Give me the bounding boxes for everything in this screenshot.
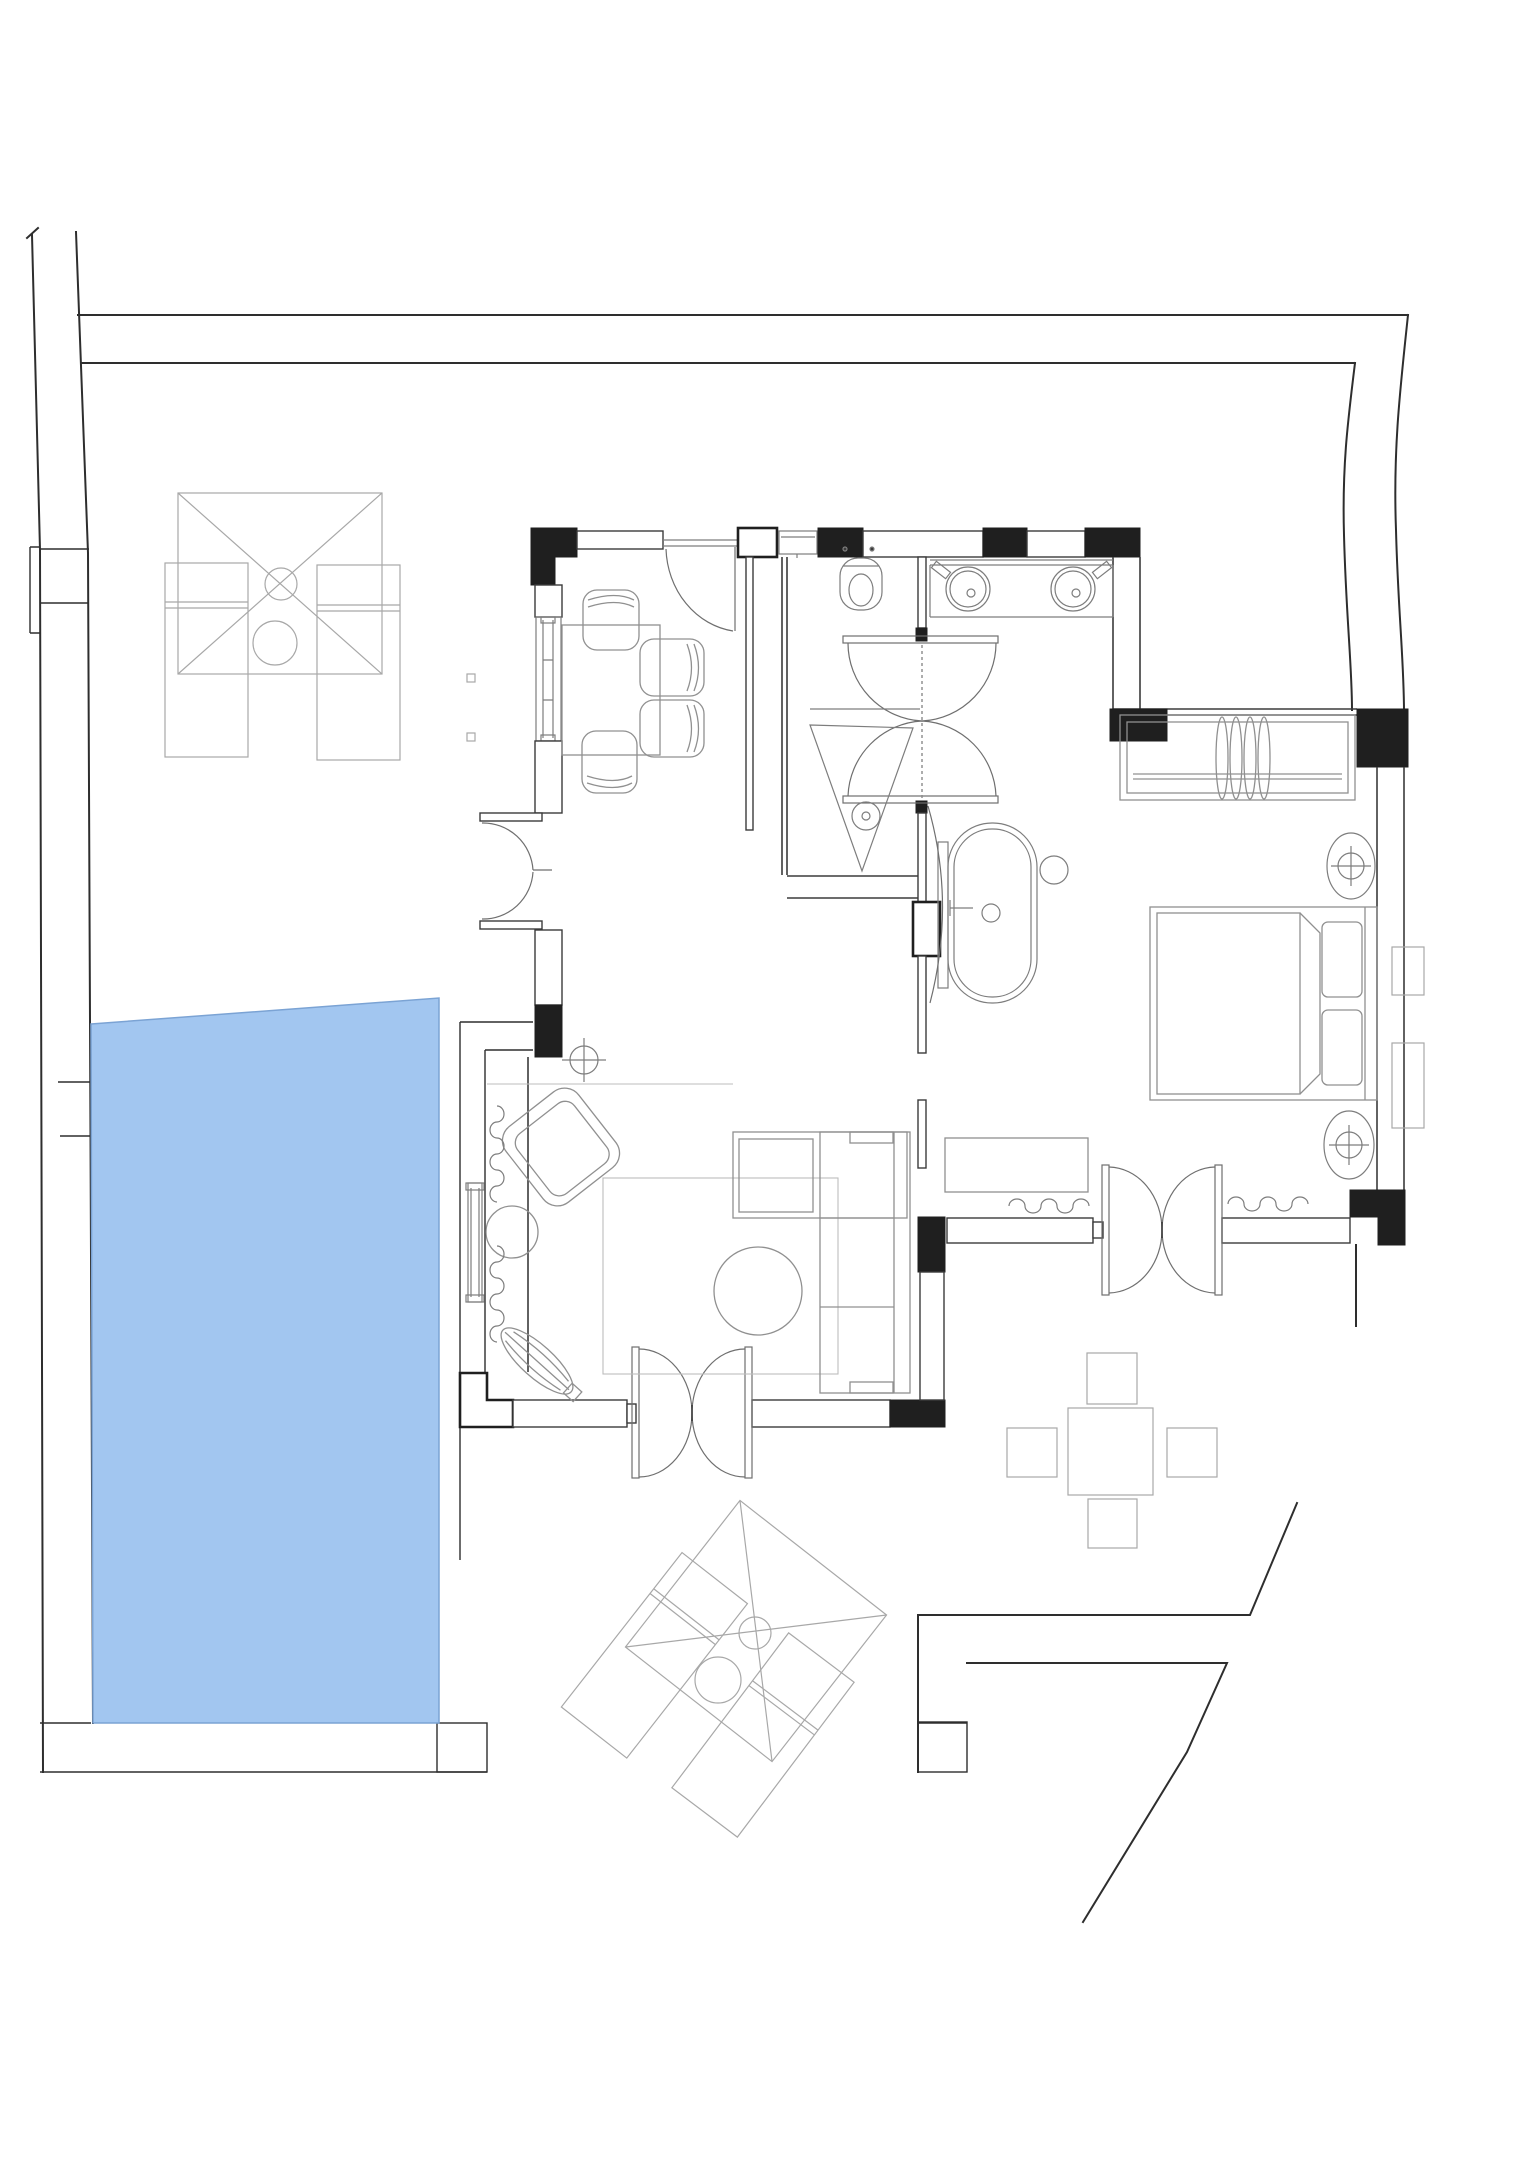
sink-left xyxy=(946,567,990,611)
floor-plan-drawing xyxy=(0,0,1526,2160)
curtain-squiggle-west-1 xyxy=(490,1106,504,1202)
ceiling-light-bed-north xyxy=(1327,833,1375,899)
bedroom-door-arc-left xyxy=(1109,1167,1162,1293)
boundary-left-outer xyxy=(32,235,43,1772)
boundary-left-inner xyxy=(76,232,93,1723)
outdoor-chair-left xyxy=(1007,1428,1057,1477)
wall-spine-lower-a xyxy=(918,956,926,1053)
dining-chair-1 xyxy=(583,590,639,650)
wall-top-kitchen xyxy=(577,531,663,549)
pillar-nw-living xyxy=(535,1005,562,1057)
wc-fixtures xyxy=(810,547,920,871)
bedroom-door-leaf-right xyxy=(1215,1165,1222,1295)
doors xyxy=(480,547,1222,1478)
entry-threshold xyxy=(663,540,738,546)
pillar-wc xyxy=(818,528,863,557)
outdoor-set-south xyxy=(561,1500,886,1837)
terrace-marker-square-1 xyxy=(467,674,475,682)
swimming-pool xyxy=(91,998,439,1723)
curtain-squiggle-hall xyxy=(1009,1199,1089,1213)
wall-bath-east xyxy=(1113,557,1140,712)
dining-chair-3 xyxy=(640,639,704,696)
dining-chair-4 xyxy=(640,700,704,757)
terrace-edge-outer xyxy=(918,1503,1297,1772)
bedroom-door-arc-right xyxy=(1162,1167,1215,1293)
outdoor-set-north xyxy=(165,493,400,760)
pillar-bath-mid xyxy=(983,528,1027,557)
faucet-right xyxy=(1092,561,1111,578)
armchair xyxy=(495,1081,627,1213)
hangers xyxy=(1216,717,1270,799)
bathtub xyxy=(948,823,1037,1003)
outdoor-chair-bottom xyxy=(1088,1499,1137,1548)
boundary-right-inner xyxy=(1344,363,1355,710)
lounger-north-right xyxy=(317,565,400,760)
boundary-wall-ticks xyxy=(40,549,92,1136)
pillar-se-living xyxy=(890,1400,945,1427)
wall-spine-upper xyxy=(918,557,926,628)
shower-area xyxy=(810,709,920,871)
curtain-squiggle-bedroom xyxy=(1228,1197,1308,1211)
bedroom-swing-double-door xyxy=(1102,1165,1222,1295)
outdoor-chair-right xyxy=(1167,1428,1217,1477)
wall-spine-lower-b xyxy=(918,1100,926,1168)
wall-south-living-right xyxy=(752,1400,890,1427)
sofa-armrest-top xyxy=(850,1132,893,1143)
ceiling-light-entry xyxy=(562,1038,606,1082)
parasol-south-table xyxy=(695,1657,741,1703)
dining-chair-2 xyxy=(582,731,637,793)
pillar-spine-hall xyxy=(918,1217,945,1272)
sofa-body xyxy=(820,1132,910,1393)
french-door-fin-top xyxy=(480,813,542,821)
kitchen-window xyxy=(536,617,561,741)
pillar-ne-bath xyxy=(1085,528,1140,557)
pillar-spine-mid xyxy=(913,902,940,956)
lounger-south-right xyxy=(672,1633,854,1837)
cistern-detail xyxy=(781,537,815,558)
toilet-cistern xyxy=(779,531,817,554)
living-door-leaf-right xyxy=(745,1347,752,1478)
wc-swing-double-door xyxy=(843,636,998,803)
parasol-north xyxy=(178,493,382,674)
pillar-sw-living xyxy=(460,1373,513,1427)
wall-bedroom-south-right xyxy=(1222,1218,1350,1243)
dining-table xyxy=(562,625,660,755)
living-door-arc-left xyxy=(639,1349,692,1477)
pillar-ne-corner xyxy=(1357,709,1408,767)
lounger-south-left xyxy=(561,1553,747,1759)
wall-wc-south xyxy=(787,876,918,898)
boundary-right-outer xyxy=(1395,315,1408,712)
curtain-squiggle-west-2 xyxy=(490,1246,504,1342)
french-door-west xyxy=(480,813,552,929)
east-wall-unit-2 xyxy=(1392,1043,1424,1128)
outdoor-chair-top xyxy=(1087,1353,1137,1404)
vanity xyxy=(930,560,1113,617)
bed xyxy=(1150,907,1377,1100)
sofa-cushion-dividers xyxy=(820,1218,894,1307)
french-door-fin-bottom xyxy=(480,921,542,929)
sofa-chaise-cushion xyxy=(739,1139,813,1212)
pillar-se-bedroom xyxy=(1350,1190,1405,1245)
ceiling-light-bed-south xyxy=(1324,1111,1374,1179)
entry-door-swing-arc xyxy=(666,549,733,631)
living-door-arc-right xyxy=(692,1349,745,1477)
terrace-corner-block xyxy=(918,1722,967,1772)
wall-top-bath-left xyxy=(863,531,983,557)
wall-south-living-left xyxy=(513,1400,627,1427)
faucet-left xyxy=(931,561,950,578)
parasol-south xyxy=(625,1500,886,1761)
bath-stool xyxy=(1040,856,1068,884)
entry-door xyxy=(666,547,735,631)
terrace-edge-inner-diagonal xyxy=(967,1663,1227,1922)
french-door-arcs xyxy=(482,823,552,919)
building-walls xyxy=(460,528,1424,1427)
living-west-window xyxy=(466,1183,484,1302)
boundary-left-bracket xyxy=(30,547,40,633)
living-room xyxy=(486,1038,910,1409)
wall-bedroom-east xyxy=(1377,767,1404,1190)
wall-west-lower xyxy=(535,930,562,1005)
wall-spine-stub-top xyxy=(916,628,927,641)
pillar-wardrobe-west xyxy=(1110,709,1167,741)
living-swing-double-door xyxy=(632,1347,752,1478)
hall-console xyxy=(945,1138,1088,1192)
plant xyxy=(492,1318,588,1409)
wall-hall-south xyxy=(920,1272,944,1400)
wall-west-upper xyxy=(535,585,562,617)
side-table xyxy=(486,1206,538,1258)
terrace-marker-square-2 xyxy=(467,733,475,741)
floor-plan-page xyxy=(0,0,1526,2160)
outdoor-table xyxy=(1068,1408,1153,1495)
east-wall-unit-1 xyxy=(1392,947,1424,995)
outdoor-dining-set xyxy=(1007,1353,1217,1548)
rug xyxy=(603,1178,838,1374)
pillar-entry xyxy=(738,528,777,557)
wall-spine-mid xyxy=(918,813,926,902)
wall-west-mid xyxy=(535,741,562,813)
sink-right xyxy=(1051,567,1095,611)
pillow-2 xyxy=(1322,1010,1362,1085)
pillow-1 xyxy=(1322,922,1362,997)
sofa xyxy=(733,1132,910,1393)
wall-wc-west-inner xyxy=(782,557,787,875)
sofa-armrest-bottom xyxy=(850,1382,893,1393)
wall-bedroom-south-left xyxy=(947,1218,1093,1243)
dining-area xyxy=(562,590,704,793)
bath-area xyxy=(928,806,1068,1003)
wall-top-bath-right xyxy=(1027,531,1085,557)
pool-deck-corner-block xyxy=(437,1723,487,1772)
wall-wc-west-outer xyxy=(746,557,753,830)
bedroom xyxy=(945,715,1377,1213)
coffee-table xyxy=(714,1247,802,1335)
pillar-nw-corner xyxy=(531,528,577,585)
